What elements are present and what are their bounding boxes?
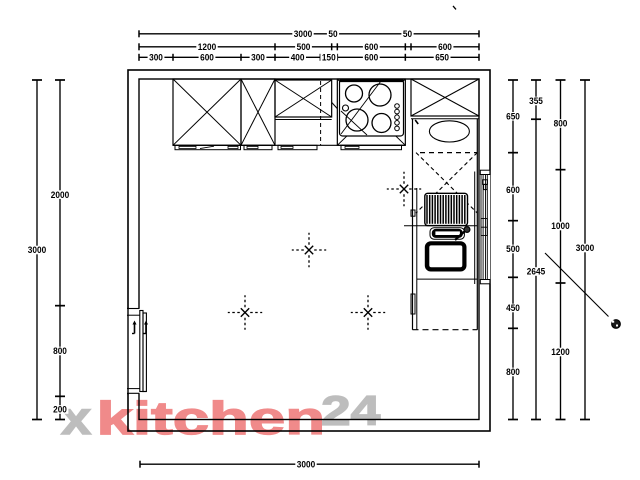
svg-text:50: 50 <box>403 29 412 40</box>
svg-text:200: 200 <box>53 405 67 416</box>
svg-text:2000: 2000 <box>51 190 69 201</box>
svg-text:600: 600 <box>364 42 378 53</box>
svg-text:600: 600 <box>506 185 520 196</box>
svg-text:500: 500 <box>297 42 311 53</box>
svg-text:650: 650 <box>506 112 520 123</box>
svg-text:450: 450 <box>506 303 520 314</box>
svg-text:3000: 3000 <box>297 459 315 470</box>
svg-text:500: 500 <box>506 244 520 255</box>
svg-text:3000: 3000 <box>28 245 46 256</box>
svg-text:3000: 3000 <box>294 29 312 40</box>
svg-text:600: 600 <box>200 53 214 64</box>
svg-text:600: 600 <box>438 42 452 53</box>
svg-text:x: x <box>61 392 91 444</box>
svg-text:1000: 1000 <box>551 221 569 232</box>
svg-text:1200: 1200 <box>551 347 569 358</box>
svg-text:355: 355 <box>529 96 543 107</box>
svg-text:2645: 2645 <box>527 267 546 278</box>
svg-text:400: 400 <box>291 53 305 64</box>
svg-text:300: 300 <box>149 53 163 64</box>
svg-text:650: 650 <box>435 53 449 64</box>
svg-text:kitchen: kitchen <box>97 392 326 443</box>
svg-text:1200: 1200 <box>198 42 216 53</box>
svg-text:50: 50 <box>328 29 337 40</box>
svg-text:300: 300 <box>251 53 265 64</box>
svg-text:600: 600 <box>364 53 378 64</box>
svg-text:800: 800 <box>554 119 568 130</box>
svg-text:800: 800 <box>506 367 520 378</box>
svg-text:24: 24 <box>321 388 381 434</box>
svg-text:800: 800 <box>53 346 67 357</box>
svg-text:3000: 3000 <box>576 243 594 254</box>
svg-text:150: 150 <box>322 53 336 64</box>
